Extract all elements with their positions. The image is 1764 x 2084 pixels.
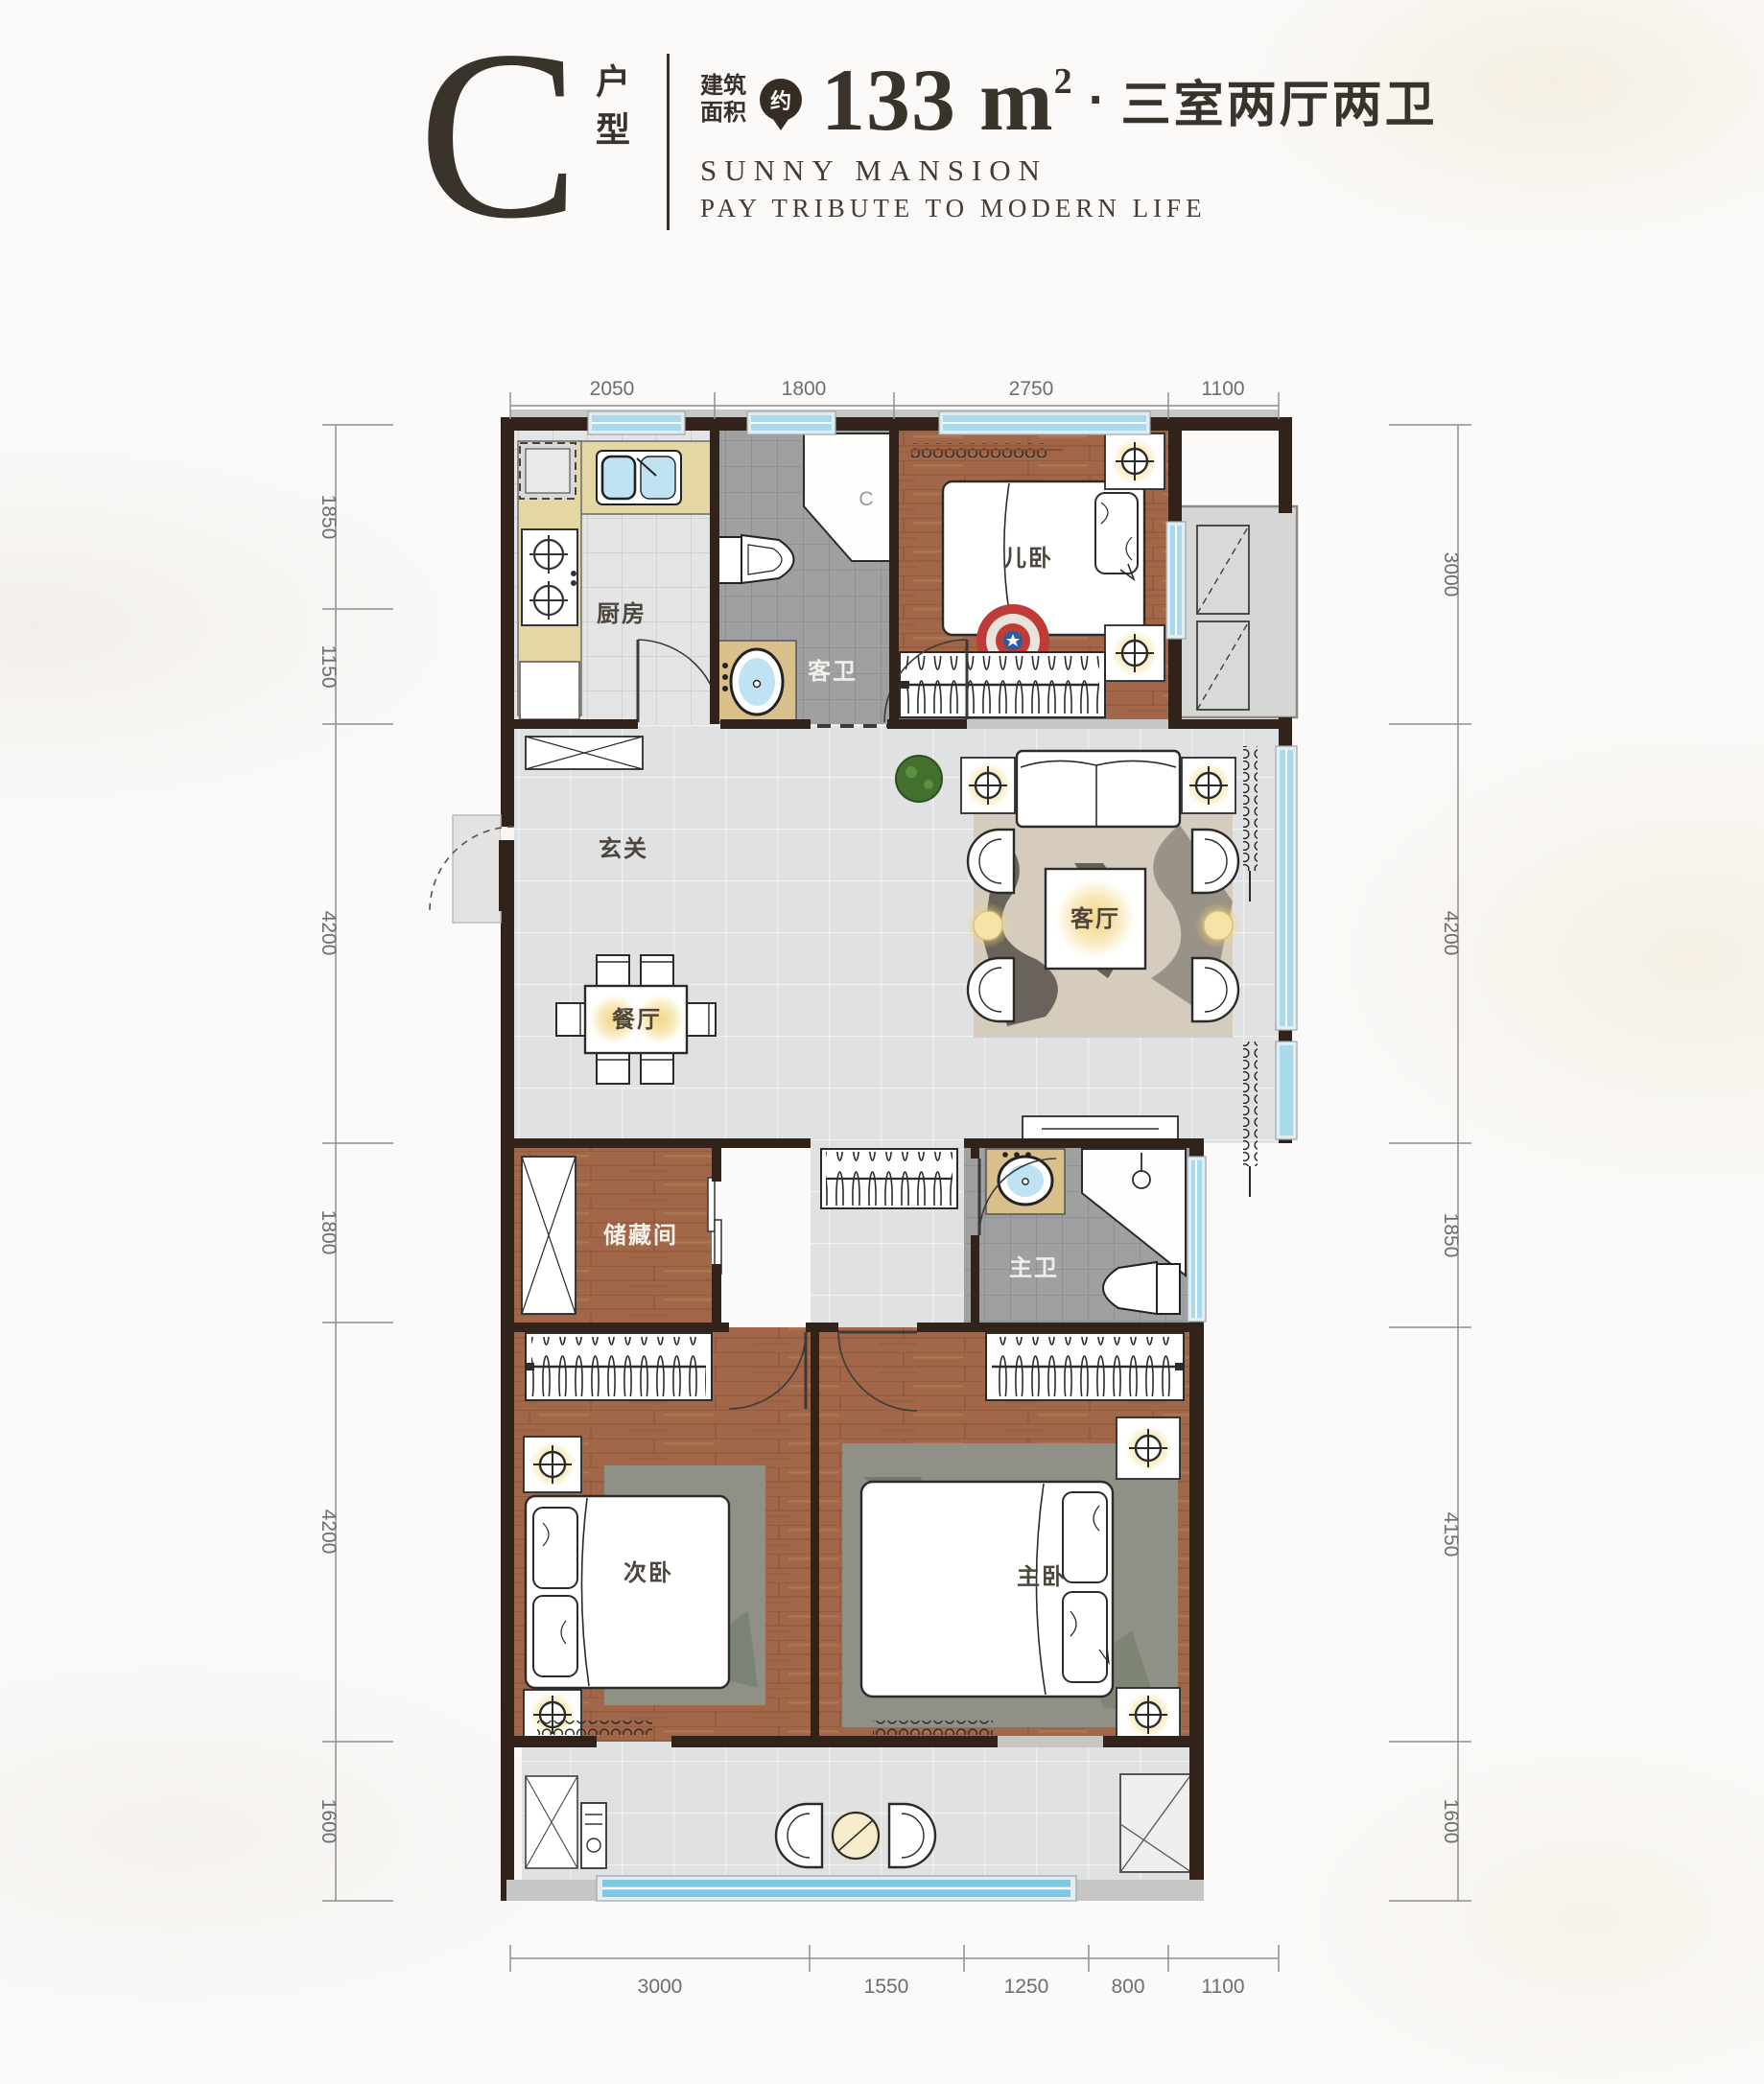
sofa-side-table-right — [1182, 758, 1235, 813]
kitchen-window — [588, 411, 685, 434]
master-toilet — [1103, 1262, 1180, 1314]
label-master-bath: 主卫 — [1009, 1255, 1059, 1281]
equipment-platform-bottom — [1120, 1774, 1191, 1872]
dim-left-5: 1600 — [318, 1799, 340, 1844]
dim-top-2: 2750 — [1009, 378, 1054, 400]
balcony-table — [827, 1807, 884, 1864]
dim-right-1: 4200 — [1440, 911, 1462, 956]
equipment-platform-top — [1174, 506, 1297, 717]
sofa — [1017, 751, 1180, 827]
shower-mark: C — [858, 488, 873, 510]
dim-top-1: 1800 — [782, 378, 827, 400]
second-nightstand-top — [524, 1437, 581, 1492]
label-living-room: 客厅 — [1070, 905, 1120, 932]
entry-door — [430, 815, 514, 923]
living-window-lower — [1276, 1042, 1297, 1139]
second-bed — [526, 1496, 729, 1688]
washing-machine — [581, 1803, 606, 1868]
stove — [522, 529, 577, 625]
kitchen-sink — [597, 451, 681, 504]
dim-bottom-3: 800 — [1111, 1976, 1144, 1998]
dim-left-3: 1800 — [318, 1210, 340, 1255]
kids-nightstand-top — [1105, 433, 1164, 489]
dim-bottom-1: 1550 — [864, 1976, 909, 1998]
dim-right-2: 1850 — [1440, 1213, 1462, 1258]
shoe-cabinet — [526, 737, 643, 769]
dim-top-0: 2050 — [590, 378, 635, 400]
label-kitchen: 厨房 — [597, 600, 647, 627]
guest-toilet — [718, 535, 794, 583]
guest-basin — [717, 641, 796, 722]
dim-right-4: 1600 — [1440, 1799, 1462, 1844]
dim-bottom-0: 3000 — [638, 1976, 683, 1998]
dim-bottom-4: 1100 — [1201, 1976, 1244, 1998]
master-nightstand-bottom — [1117, 1688, 1180, 1742]
label-storage: 储藏间 — [603, 1222, 678, 1249]
dim-left-0: 1850 — [318, 495, 340, 540]
kids-nightstand-bottom — [1105, 625, 1164, 681]
master-bedroom-wardrobe — [986, 1333, 1184, 1400]
second-bedroom-wardrobe — [526, 1333, 712, 1400]
dim-right-0: 3000 — [1440, 552, 1462, 597]
label-kids-bedroom: 儿卧 — [1003, 546, 1053, 572]
balcony-door-panel — [526, 1776, 577, 1868]
master-bath-window — [1188, 1157, 1206, 1322]
kids-bay-window — [1166, 522, 1186, 639]
dim-bottom-2: 1250 — [1004, 1976, 1049, 1998]
fridge — [520, 443, 576, 499]
dim-top-3: 1100 — [1201, 378, 1244, 400]
label-dining-room: 餐厅 — [612, 1007, 662, 1033]
plant — [896, 756, 942, 802]
tv-console — [1023, 1116, 1178, 1141]
dim-chain-right — [1389, 425, 1471, 1901]
kids-wardrobe — [900, 652, 1105, 717]
pouf-left — [965, 902, 1011, 948]
guest-bath-window — [747, 411, 835, 434]
label-second-bedroom: 次卧 — [623, 1560, 673, 1586]
kids-bedroom-window — [939, 411, 1150, 434]
dim-left-2: 4200 — [318, 911, 340, 956]
pouf-right — [1195, 902, 1241, 948]
balcony-glazing — [597, 1876, 1076, 1901]
kitchen-cabinet — [520, 662, 579, 719]
dim-chain-bottom — [510, 1945, 1279, 1972]
floorplan-drawing: C — [0, 0, 1764, 2084]
master-nightstand-top — [1117, 1417, 1180, 1479]
hall-closet — [821, 1149, 957, 1208]
floorplan-page: C 户型 建筑 面积 约 133 m2 · 三室两厅两卫 SUNNY MANSI… — [0, 0, 1764, 2084]
label-guest-bath: 客卫 — [808, 658, 858, 685]
label-master-bedroom: 主卧 — [1017, 1564, 1067, 1590]
master-bed — [861, 1482, 1113, 1697]
sofa-side-table-left — [961, 758, 1015, 813]
living-window-upper — [1276, 746, 1297, 1030]
label-foyer: 玄关 — [599, 835, 648, 862]
dim-right-3: 4150 — [1440, 1512, 1462, 1557]
dim-left-4: 4200 — [318, 1510, 340, 1555]
dim-left-1: 1150 — [318, 644, 340, 688]
